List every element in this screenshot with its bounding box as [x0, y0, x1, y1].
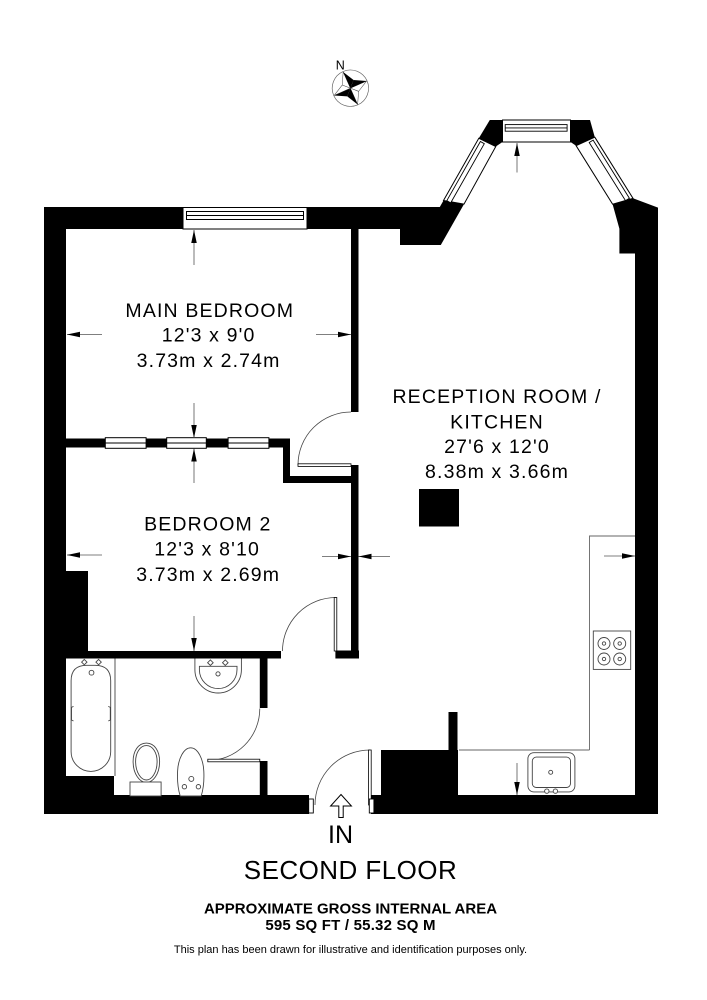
svg-text:3.73m x 2.74m: 3.73m x 2.74m: [137, 350, 281, 372]
svg-text:RECEPTION ROOM /: RECEPTION ROOM /: [392, 386, 601, 408]
svg-text:KITCHEN: KITCHEN: [450, 412, 544, 434]
svg-text:27'6 x 12'0: 27'6 x 12'0: [444, 436, 550, 458]
svg-text:IN: IN: [328, 821, 353, 849]
svg-text:MAIN BEDROOM: MAIN BEDROOM: [125, 300, 294, 322]
svg-text:This plan has been drawn for i: This plan has been drawn for illustrativ…: [174, 944, 527, 956]
svg-text:12'3 x 8'10: 12'3 x 8'10: [154, 539, 260, 561]
svg-text:APPROXIMATE GROSS INTERNAL ARE: APPROXIMATE GROSS INTERNAL AREA: [204, 901, 497, 918]
svg-text:N: N: [336, 58, 345, 72]
svg-text:595 SQ FT / 55.32 SQ M: 595 SQ FT / 55.32 SQ M: [265, 917, 435, 934]
svg-text:BEDROOM 2: BEDROOM 2: [144, 514, 271, 536]
svg-text:SECOND FLOOR: SECOND FLOOR: [244, 855, 457, 885]
svg-text:12'3 x 9'0: 12'3 x 9'0: [162, 325, 256, 347]
svg-text:3.73m x 2.69m: 3.73m x 2.69m: [136, 564, 280, 586]
svg-text:8.38m x 3.66m: 8.38m x 3.66m: [425, 461, 569, 483]
